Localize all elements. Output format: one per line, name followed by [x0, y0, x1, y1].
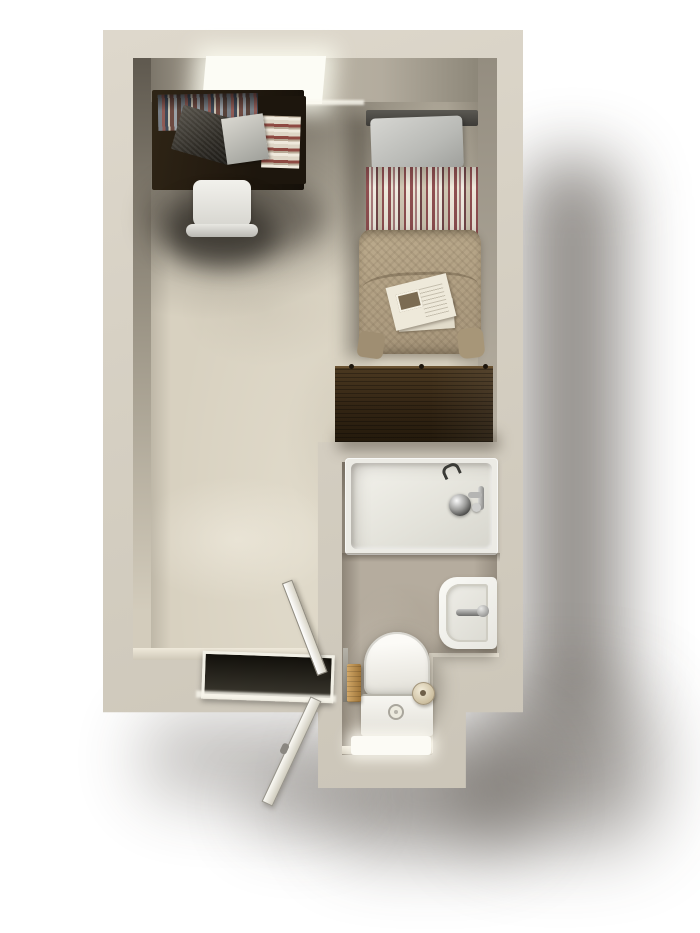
blanket-corner-left: [356, 330, 385, 359]
newspaper-text-lines: [419, 282, 450, 317]
dresser-knob: [419, 364, 424, 369]
bath-mat: [351, 736, 431, 755]
flush-button: [388, 704, 404, 720]
floor-plan-render: [0, 0, 700, 933]
left-wall-inner-face: [133, 58, 151, 660]
tub-faucet: [449, 494, 471, 516]
tub-front-shadow: [342, 553, 500, 562]
sink-faucet-knob: [477, 605, 489, 617]
cast-shadow-right: [525, 160, 620, 720]
towel: [347, 664, 361, 702]
desk-chair-base: [186, 224, 258, 237]
toilet-paper-roll: [412, 682, 435, 705]
bed-pillow: [370, 115, 464, 170]
tub-handle-arm: [468, 492, 482, 498]
desk-chair: [193, 180, 251, 228]
desk-papers: [221, 113, 269, 164]
bed-striped-sheet: [366, 167, 478, 235]
flush-button-dot: [394, 710, 398, 714]
tub-handle-knob: [472, 503, 481, 512]
blanket-corner-right: [457, 327, 486, 360]
toilet-paper-core: [420, 690, 426, 696]
dresser: [335, 366, 493, 442]
dresser-knob: [483, 364, 488, 369]
book-stack: [261, 115, 301, 168]
dresser-knob: [349, 364, 354, 369]
